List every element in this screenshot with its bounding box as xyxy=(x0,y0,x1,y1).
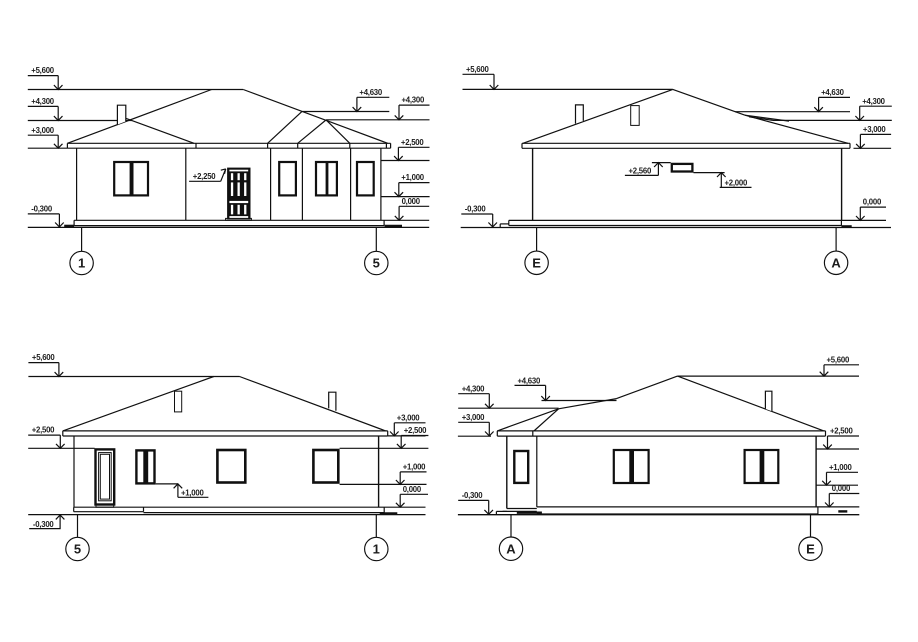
svg-text:+2,000: +2,000 xyxy=(725,179,748,188)
svg-text:-0,300: -0,300 xyxy=(33,520,55,529)
svg-text:0,000: 0,000 xyxy=(832,484,851,493)
svg-text:+2,500: +2,500 xyxy=(830,427,853,436)
svg-text:0,000: 0,000 xyxy=(403,485,422,494)
svg-text:0,000: 0,000 xyxy=(863,198,882,207)
svg-text:-0,300: -0,300 xyxy=(31,205,53,214)
svg-text:+2,250: +2,250 xyxy=(193,172,216,181)
svg-text:+4,300: +4,300 xyxy=(31,97,54,106)
svg-text:+4,630: +4,630 xyxy=(821,88,844,97)
svg-text:+4,300: +4,300 xyxy=(862,97,885,106)
svg-text:+5,600: +5,600 xyxy=(32,353,55,362)
svg-text:+5,600: +5,600 xyxy=(827,355,850,364)
svg-text:+2,500: +2,500 xyxy=(32,426,55,435)
svg-text:+3,000: +3,000 xyxy=(31,126,54,135)
svg-text:E: E xyxy=(806,541,815,556)
svg-text:+5,600: +5,600 xyxy=(31,66,54,75)
svg-text:+3,000: +3,000 xyxy=(863,125,886,134)
svg-text:1: 1 xyxy=(78,256,85,271)
svg-text:+5,600: +5,600 xyxy=(466,65,489,74)
svg-text:+1,000: +1,000 xyxy=(401,173,424,182)
svg-text:-0,300: -0,300 xyxy=(465,205,487,214)
svg-text:+4,300: +4,300 xyxy=(462,384,485,393)
svg-text:+4,630: +4,630 xyxy=(518,376,541,385)
svg-text:+1,000: +1,000 xyxy=(181,489,204,498)
svg-text:5: 5 xyxy=(74,542,81,557)
svg-text:+3,000: +3,000 xyxy=(397,413,420,422)
svg-text:+4,300: +4,300 xyxy=(402,96,425,105)
svg-text:A: A xyxy=(831,255,841,270)
svg-text:A: A xyxy=(506,541,516,556)
svg-text:E: E xyxy=(532,255,541,270)
svg-text:+3,000: +3,000 xyxy=(462,413,485,422)
svg-text:0,000: 0,000 xyxy=(402,197,421,206)
svg-text:+2,560: +2,560 xyxy=(629,166,652,175)
svg-text:+2,500: +2,500 xyxy=(401,138,424,147)
svg-text:+4,630: +4,630 xyxy=(359,88,382,97)
svg-text:+1,000: +1,000 xyxy=(829,463,852,472)
svg-text:-0,300: -0,300 xyxy=(462,491,484,500)
svg-text:1: 1 xyxy=(373,542,380,557)
svg-text:+1,000: +1,000 xyxy=(403,463,426,472)
svg-text:+2,500: +2,500 xyxy=(404,426,427,435)
svg-text:5: 5 xyxy=(373,256,380,271)
